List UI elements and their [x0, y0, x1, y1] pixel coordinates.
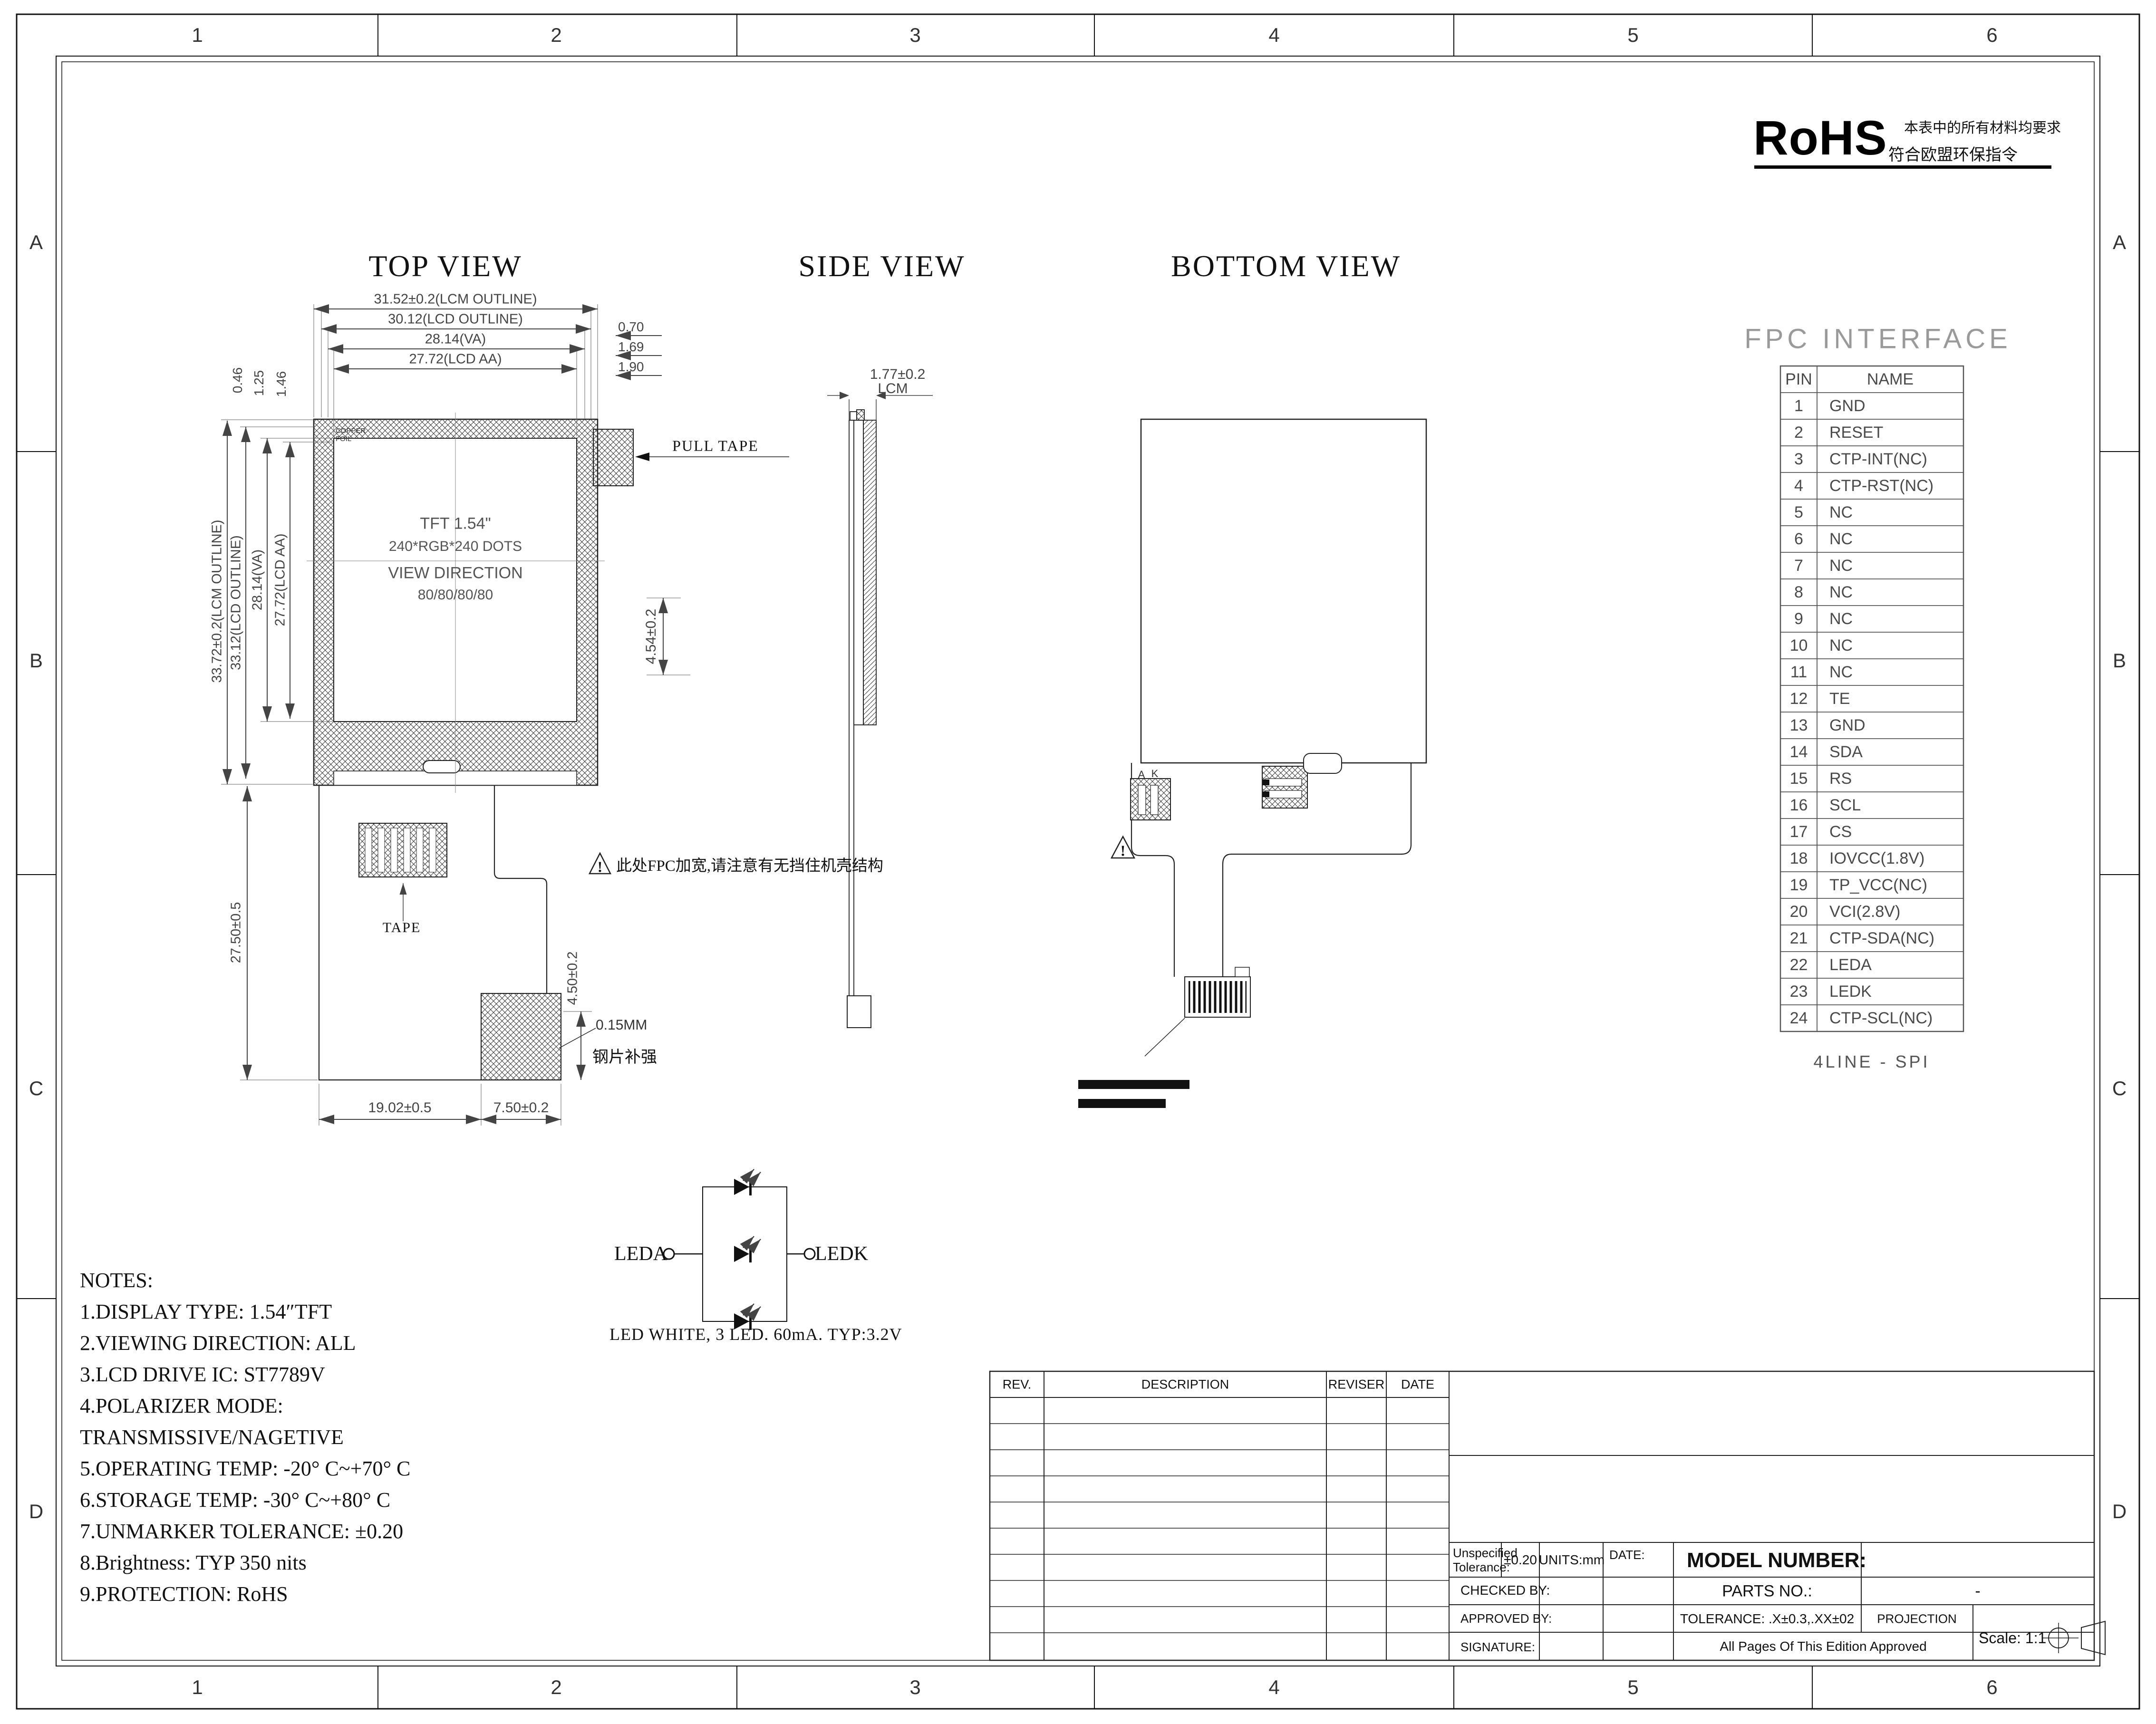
pin-name: IOVCC(1.8V) — [1817, 849, 1924, 868]
dim-label: 27.50±0.5 — [229, 902, 244, 963]
date-header: DATE — [1401, 1377, 1434, 1392]
pin-number: 14 — [1780, 743, 1817, 761]
pin-k-label: K — [1151, 768, 1159, 780]
dim-label: 33.12(LCD OUTLINE) — [229, 535, 244, 670]
table-row: 11NC — [1780, 659, 1963, 685]
note-line: 5.OPERATING TEMP: -20° C~+70° C — [80, 1456, 410, 1481]
pin-name: SDA — [1817, 743, 1863, 761]
pin-name: CTP-SDA(NC) — [1817, 929, 1934, 948]
pin-name: NC — [1817, 503, 1853, 522]
bottom-view-title: BOTTOM VIEW — [1171, 249, 1401, 284]
approved-by-label: APPROVED BY: — [1460, 1611, 1552, 1626]
rohs-note-line2: 符合欧盟环保指令 — [1888, 142, 2018, 165]
pin-number: 4 — [1780, 477, 1817, 495]
rev-header: REV. — [1003, 1377, 1032, 1392]
dim-label: 19.02±0.5 — [368, 1100, 431, 1116]
pin-name: CTP-SCL(NC) — [1817, 1009, 1933, 1028]
grid-col-label: 5 — [1627, 24, 1638, 47]
pin-a-label: A — [1138, 769, 1145, 781]
pin-header: PIN — [1780, 370, 1817, 389]
ledk-label: LEDK — [815, 1242, 868, 1265]
description-header: DESCRIPTION — [1141, 1377, 1229, 1392]
note-line: 1.DISPLAY TYPE: 1.54″TFT — [80, 1300, 332, 1324]
pin-name: TE — [1817, 690, 1850, 708]
grid-col-label: 4 — [1268, 24, 1279, 47]
grid-col-label: 6 — [1986, 24, 1997, 47]
pin-name: NC — [1817, 636, 1853, 655]
pin-number: 6 — [1780, 530, 1817, 549]
table-row: 14SDA — [1780, 739, 1963, 765]
grid-col-label: 1 — [192, 1676, 203, 1699]
dim-label: 28.14(VA) — [425, 332, 486, 347]
rohs-note-line1: 本表中的所有材料均要求 — [1904, 116, 2061, 137]
dim-label: 4.50±0.2 — [565, 952, 581, 1005]
table-row: 19TP_VCC(NC) — [1780, 872, 1963, 898]
table-row: 5NC — [1780, 499, 1963, 526]
pin-number: 1 — [1780, 397, 1817, 415]
pin-number: 16 — [1780, 796, 1817, 815]
pull-tape-label: PULL TAPE — [672, 437, 759, 455]
pin-number: 3 — [1780, 450, 1817, 469]
table-row: 9NC — [1780, 606, 1963, 632]
dim-label: 0.46 — [230, 367, 245, 394]
table-row: 23LEDK — [1780, 978, 1963, 1005]
table-row: 20VCI(2.8V) — [1780, 898, 1963, 925]
pin-name: GND — [1817, 716, 1866, 735]
table-row: 6NC — [1780, 526, 1963, 552]
grid-col-label: 3 — [909, 1676, 920, 1699]
note-line: 6.STORAGE TEMP: -30° C~+80° C — [80, 1488, 390, 1512]
table-row: 8NC — [1780, 579, 1963, 606]
dim-label: 1.46 — [274, 371, 289, 397]
pin-name: NC — [1817, 557, 1853, 575]
pin-name: LEDA — [1817, 956, 1872, 974]
pin-name: NC — [1817, 610, 1853, 628]
reviser-header: REVISER — [1328, 1377, 1385, 1392]
dim-label: 28.14(VA) — [250, 549, 266, 610]
note-line: TRANSMISSIVE/NAGETIVE — [80, 1425, 344, 1449]
dim-label: 1.77±0.2 — [870, 366, 926, 383]
grid-col-label: 3 — [909, 24, 920, 47]
pin-name: CTP-INT(NC) — [1817, 450, 1927, 469]
pin-number: 22 — [1780, 956, 1817, 974]
note-line: 3.LCD DRIVE IC: ST7789V — [80, 1362, 325, 1387]
fpc-pin-table: PINNAME 1GND 2RESET 3CTP-INT(NC) 4CTP-RS… — [1780, 366, 1963, 1031]
pin-name: NC — [1817, 530, 1853, 549]
note-line: 7.UNMARKER TOLERANCE: ±0.20 — [80, 1519, 403, 1543]
parts-no-label: PARTS NO.: — [1722, 1582, 1812, 1601]
table-row: 16SCL — [1780, 792, 1963, 819]
grid-col-label: 2 — [551, 1676, 561, 1699]
date-label: DATE: — [1609, 1548, 1645, 1562]
table-row: 10NC — [1780, 632, 1963, 659]
dim-label: 27.72(LCD AA) — [409, 352, 502, 367]
dim-label: 1.69 — [618, 339, 644, 355]
rohs-logo: RoHS — [1753, 110, 1887, 166]
pin-number: 11 — [1780, 663, 1817, 682]
pin-number: 21 — [1780, 929, 1817, 948]
drawing-sheet: 1 2 3 4 5 6 1 2 3 4 5 6 A B C D A B C D … — [0, 0, 2156, 1724]
display-spec-line: VIEW DIRECTION — [388, 564, 522, 583]
grid-col-label: 4 — [1268, 1676, 1279, 1699]
grid-col-label: 2 — [551, 24, 561, 47]
pin-number: 7 — [1780, 557, 1817, 575]
grid-row-label: A — [29, 231, 43, 254]
table-row: 17CS — [1780, 819, 1963, 845]
top-view-title: TOP VIEW — [368, 249, 522, 284]
grid-row-label: D — [29, 1500, 43, 1523]
pin-number: 23 — [1780, 982, 1817, 1001]
signature-label: SIGNATURE: — [1460, 1640, 1535, 1655]
table-row: 13GND — [1780, 712, 1963, 739]
note-line: 9.PROTECTION: RoHS — [80, 1582, 288, 1606]
pin-name: NC — [1817, 583, 1853, 602]
tolerance-label: TOLERANCE: .X±0.3,.XX±02 — [1680, 1611, 1854, 1627]
pin-number: 10 — [1780, 636, 1817, 655]
pin-number: 18 — [1780, 849, 1817, 868]
grid-col-label: 6 — [1986, 1676, 1997, 1699]
stiffener-note: 0.15MM — [596, 1017, 647, 1033]
dim-label: 7.50±0.2 — [493, 1100, 549, 1116]
pin-number: 12 — [1780, 690, 1817, 708]
pin-number: 17 — [1780, 823, 1817, 841]
display-spec-line: TFT 1.54" — [420, 515, 491, 533]
table-row: 7NC — [1780, 552, 1963, 579]
table-row: 1GND — [1780, 393, 1963, 419]
projection-label: PROJECTION — [1877, 1612, 1957, 1627]
edition-note: All Pages Of This Edition Approved — [1720, 1639, 1926, 1654]
pin-name: TP_VCC(NC) — [1817, 876, 1927, 895]
pin-name: VCI(2.8V) — [1817, 903, 1900, 921]
pin-number: 24 — [1780, 1009, 1817, 1028]
pin-number: 15 — [1780, 770, 1817, 788]
dim-label: LCM — [878, 381, 908, 397]
table-row: 4CTP-RST(NC) — [1780, 472, 1963, 499]
pin-name: GND — [1817, 397, 1866, 415]
table-row: 21CTP-SDA(NC) — [1780, 925, 1963, 952]
grid-row-label: C — [29, 1077, 43, 1100]
note-line: 2.VIEWING DIRECTION: ALL — [80, 1331, 356, 1355]
display-spec-line: 80/80/80/80 — [418, 587, 493, 603]
grid-row-label: B — [2113, 649, 2126, 672]
units-label: UNITS:mm — [1539, 1552, 1605, 1568]
table-row: 24CTP-SCL(NC) — [1780, 1005, 1963, 1031]
pin-number: 13 — [1780, 716, 1817, 735]
name-header: NAME — [1817, 370, 1963, 389]
grid-row-label: D — [2112, 1500, 2127, 1523]
pin-name: NC — [1817, 663, 1853, 682]
led-caption: LED WHITE, 3 LED. 60mA. TYP:3.2V — [609, 1324, 902, 1344]
model-number-label: MODEL NUMBER: — [1687, 1549, 1866, 1572]
table-row: 3CTP-INT(NC) — [1780, 446, 1963, 472]
pin-number: 9 — [1780, 610, 1817, 628]
pin-name: LEDK — [1817, 982, 1872, 1001]
pin-name: RESET — [1817, 424, 1883, 442]
table-row: 15RS — [1780, 765, 1963, 792]
notes-title: NOTES: — [80, 1268, 153, 1292]
fpc-warning-note: 此处FPC加宽,请注意有无挡住机壳结构 — [616, 853, 883, 876]
checked-by-label: CHECKED BY: — [1460, 1583, 1550, 1598]
dim-label: 30.12(LCD OUTLINE) — [388, 312, 523, 327]
pin-number: 5 — [1780, 503, 1817, 522]
grid-col-label: 5 — [1627, 1676, 1638, 1699]
dim-label: 31.52±0.2(LCM OUTLINE) — [374, 292, 537, 308]
table-row: 2RESET — [1780, 419, 1963, 446]
pin-name: SCL — [1817, 796, 1861, 815]
pin-name: CS — [1817, 823, 1852, 841]
grid-col-label: 1 — [192, 24, 203, 47]
pin-number: 2 — [1780, 424, 1817, 442]
pin-name: RS — [1817, 770, 1852, 788]
dim-label: 27.72(LCD AA) — [273, 533, 289, 626]
note-line: 8.Brightness: TYP 350 nits — [80, 1551, 307, 1575]
table-row: 18IOVCC(1.8V) — [1780, 845, 1963, 872]
warning-exclamation: ! — [1121, 842, 1126, 860]
display-spec-line: 240*RGB*240 DOTS — [389, 539, 522, 555]
fpc-footer-label: 4LINE - SPI — [1813, 1052, 1930, 1072]
table-header-row: PINNAME — [1780, 366, 1963, 393]
unspecified-tolerance-label2: Tolerance: — [1453, 1560, 1510, 1575]
pin-number: 19 — [1780, 876, 1817, 895]
parts-no-value: - — [1975, 1582, 1980, 1601]
dim-label: 1.25 — [251, 370, 267, 396]
scale-label: Scale: 1:1 — [1979, 1629, 2046, 1647]
leda-label: LEDA — [614, 1242, 667, 1265]
table-row: 12TE — [1780, 685, 1963, 712]
unspecified-tolerance-value: ±0.20 — [1504, 1552, 1537, 1568]
side-view-title: SIDE VIEW — [798, 249, 965, 284]
grid-row-label: A — [2113, 231, 2126, 254]
dim-label: 1.90 — [618, 359, 644, 375]
copper-foil-label: COPPER FOIL — [336, 427, 372, 443]
note-line: 4.POLARIZER MODE: — [80, 1394, 283, 1418]
warning-exclamation: ! — [598, 858, 603, 876]
dim-label: 4.54±0.2 — [643, 609, 659, 665]
pin-number: 8 — [1780, 583, 1817, 602]
tape-label: TAPE — [383, 920, 421, 936]
pin-number: 20 — [1780, 903, 1817, 921]
table-row: 22LEDA — [1780, 952, 1963, 978]
grid-row-label: C — [2112, 1077, 2127, 1100]
dim-label: 33.72±0.2(LCM OUTLINE) — [210, 520, 225, 683]
dim-label: 0.70 — [618, 319, 644, 335]
pin-name: CTP-RST(NC) — [1817, 477, 1934, 495]
grid-row-label: B — [29, 649, 43, 672]
fpc-interface-title: FPC INTERFACE — [1744, 323, 2011, 355]
stiffener-note-cn: 钢片补强 — [592, 1044, 657, 1067]
